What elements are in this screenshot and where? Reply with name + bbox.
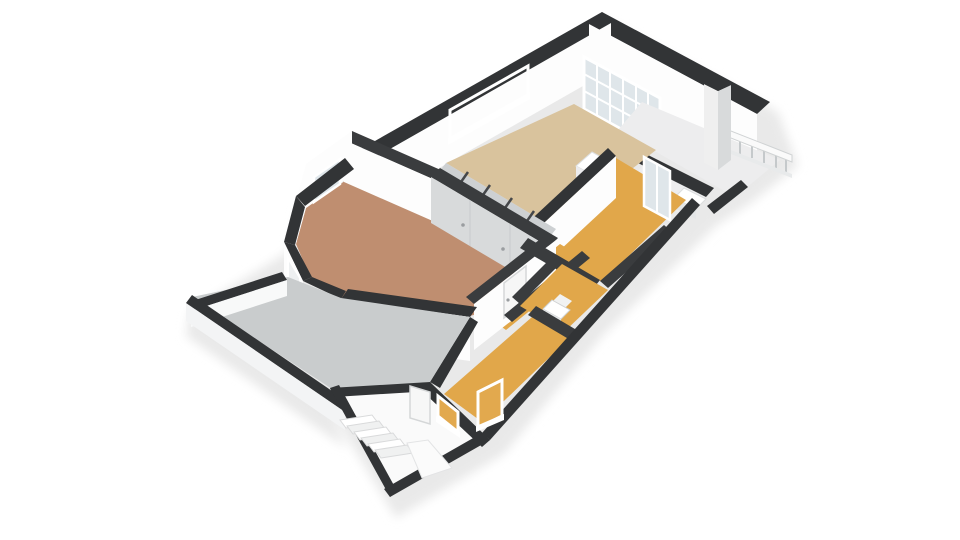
floorplan-3d-render <box>0 0 960 540</box>
chimney-face-right <box>718 85 731 170</box>
floorplan-canvas <box>0 0 960 540</box>
chimney-face-left <box>704 84 718 170</box>
closet-handle <box>501 247 505 251</box>
closet-handle <box>461 223 465 227</box>
chimney <box>704 78 731 170</box>
hall-door-handle <box>506 298 509 301</box>
landing-door <box>410 386 430 424</box>
